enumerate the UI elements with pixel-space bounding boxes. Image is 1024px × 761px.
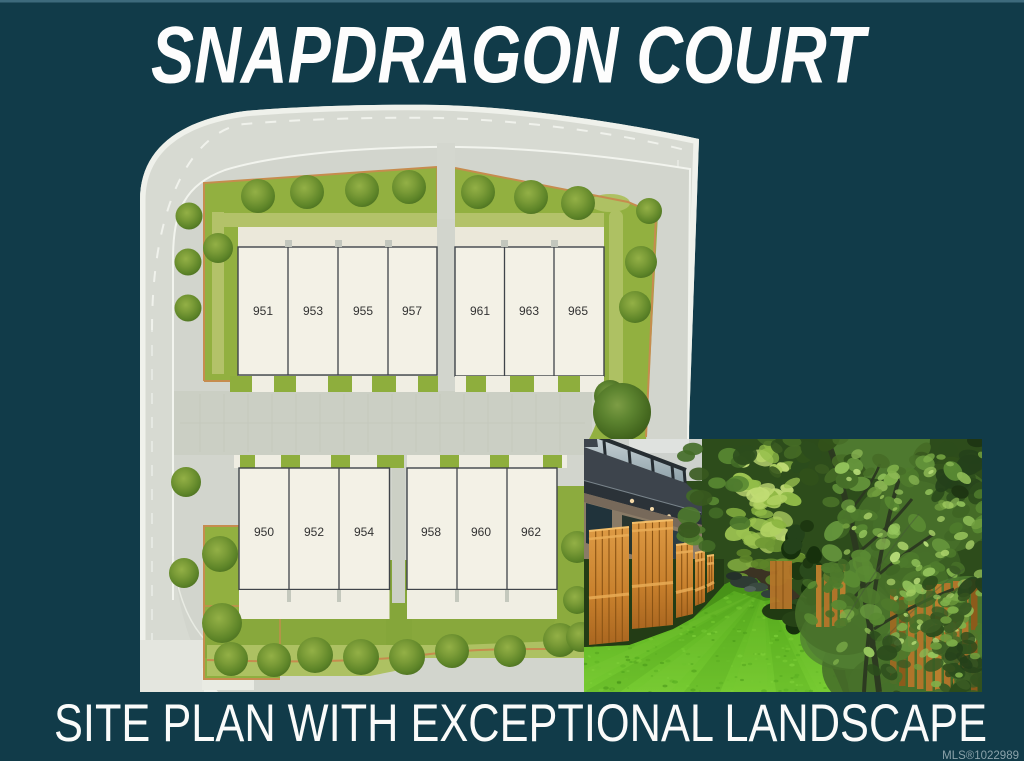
svg-text:960: 960 — [471, 525, 491, 539]
svg-text:950: 950 — [254, 525, 274, 539]
svg-text:951: 951 — [253, 304, 273, 318]
svg-text:961: 961 — [470, 304, 490, 318]
svg-text:957: 957 — [402, 304, 422, 318]
svg-text:SNAPDRAGON COURT: SNAPDRAGON COURT — [151, 11, 870, 101]
svg-text:954: 954 — [354, 525, 374, 539]
svg-text:962: 962 — [521, 525, 541, 539]
svg-text:953: 953 — [303, 304, 323, 318]
svg-text:963: 963 — [519, 304, 539, 318]
svg-text:965: 965 — [568, 304, 588, 318]
svg-text:952: 952 — [304, 525, 324, 539]
svg-text:SITE PLAN WITH EXCEPTIONAL LAN: SITE PLAN WITH EXCEPTIONAL LANDSCAPE — [54, 694, 987, 753]
svg-text:MLS®1022989: MLS®1022989 — [942, 750, 1019, 761]
svg-text:958: 958 — [421, 525, 441, 539]
svg-text:955: 955 — [353, 304, 373, 318]
